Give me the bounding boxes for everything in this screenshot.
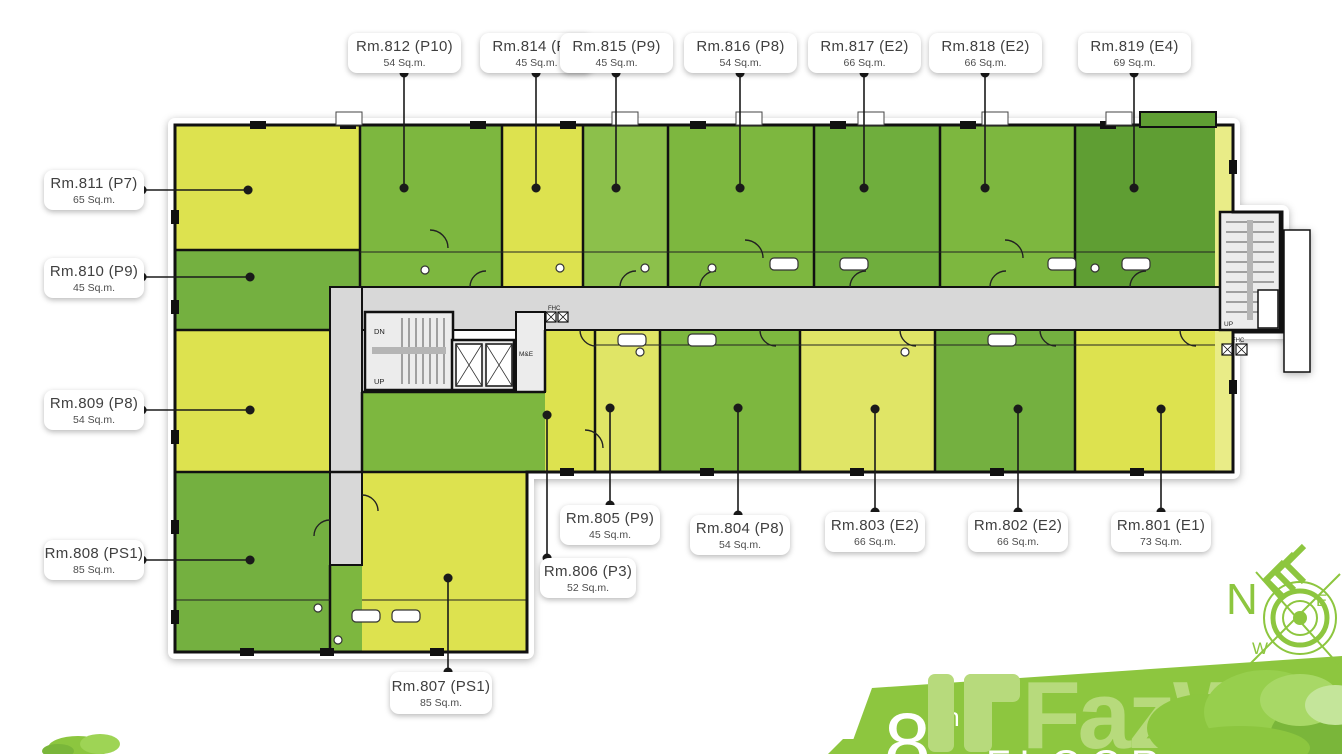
room-name: Rm.815 (P9) xyxy=(572,38,660,55)
room-name: Rm.818 (E2) xyxy=(941,38,1029,55)
room-area: 66 Sq.m. xyxy=(843,57,885,69)
callout-rm-818: Rm.818 (E2) 66 Sq.m. xyxy=(929,33,1042,73)
corridor-main xyxy=(350,287,1256,330)
room-name: Rm.816 (P8) xyxy=(696,38,784,55)
stair-up-label: UP xyxy=(374,377,384,386)
room-802 xyxy=(935,330,1075,472)
service-annex xyxy=(1284,230,1310,372)
callout-rm-808: Rm.808 (PS1) 85 Sq.m. xyxy=(44,540,144,580)
room-801 xyxy=(1075,330,1215,472)
compass-west: W xyxy=(1252,639,1268,658)
room-817 xyxy=(814,125,940,287)
room-area: 54 Sq.m. xyxy=(719,539,761,551)
right-lift xyxy=(1258,290,1278,328)
room-803 xyxy=(800,330,935,472)
room-area: 54 Sq.m. xyxy=(719,57,761,69)
callout-rm-819: Rm.819 (E4) 69 Sq.m. xyxy=(1078,33,1191,73)
room-name: Rm.808 (PS1) xyxy=(45,545,144,562)
room-name: Rm.804 (P8) xyxy=(696,520,784,537)
room-805 xyxy=(595,330,660,472)
room-806 xyxy=(545,330,595,472)
room-name: Rm.812 (P10) xyxy=(356,38,453,55)
room-807 xyxy=(362,472,527,652)
room-area: 66 Sq.m. xyxy=(854,536,896,548)
room-812 xyxy=(360,125,502,287)
room-area: 65 Sq.m. xyxy=(73,194,115,206)
callout-rm-807: Rm.807 (PS1) 85 Sq.m. xyxy=(390,672,492,714)
room-814 xyxy=(502,125,583,287)
floor-plan-canvas: DN UP M&E FHC UP DN FHC xyxy=(0,0,1342,754)
me-label: M&E xyxy=(519,351,534,358)
floor-plan-page: DN UP M&E FHC UP DN FHC xyxy=(0,0,1342,754)
room-area: 54 Sq.m. xyxy=(73,414,115,426)
floor-number: 8 xyxy=(884,696,931,754)
room-815 xyxy=(583,125,668,287)
room-area: 45 Sq.m. xyxy=(515,57,557,69)
room-name: Rm.805 (P9) xyxy=(566,510,654,527)
callout-rm-810: Rm.810 (P9) 45 Sq.m. xyxy=(44,258,144,298)
room-area: 45 Sq.m. xyxy=(595,57,637,69)
room-utility xyxy=(362,392,545,472)
callout-rm-803: Rm.803 (E2) 66 Sq.m. xyxy=(825,512,925,552)
callout-rm-806: Rm.806 (P3) 52 Sq.m. xyxy=(540,558,636,598)
compass-north: N xyxy=(1226,575,1258,624)
callout-rm-817: Rm.817 (E2) 66 Sq.m. xyxy=(808,33,921,73)
callout-rm-809: Rm.809 (P8) 54 Sq.m. xyxy=(44,390,144,430)
room-name: Rm.817 (E2) xyxy=(820,38,908,55)
room-name: Rm.811 (P7) xyxy=(50,175,137,192)
room-name: Rm.809 (P8) xyxy=(50,395,138,412)
compass-east: E xyxy=(1316,591,1327,610)
room-area: 69 Sq.m. xyxy=(1113,57,1155,69)
room-area: 45 Sq.m. xyxy=(589,529,631,541)
room-name: Rm.801 (E1) xyxy=(1117,517,1205,534)
stair-right-up-label: UP xyxy=(1224,321,1233,328)
room-811 xyxy=(175,125,360,250)
room-area: 66 Sq.m. xyxy=(997,536,1039,548)
room-area: 54 Sq.m. xyxy=(383,57,425,69)
callout-rm-816: Rm.816 (P8) 54 Sq.m. xyxy=(684,33,797,73)
corridor-wing xyxy=(330,287,362,565)
room-name: Rm.807 (PS1) xyxy=(392,678,491,695)
room-name: Rm.810 (P9) xyxy=(50,263,138,280)
room-name: Rm.819 (E4) xyxy=(1090,38,1178,55)
callout-rm-802: Rm.802 (E2) 66 Sq.m. xyxy=(968,512,1068,552)
footer-graphics: 8 th FLOOR PLAN FazWaz xyxy=(42,656,1342,754)
room-area: 85 Sq.m. xyxy=(420,697,462,709)
room-area: 45 Sq.m. xyxy=(73,282,115,294)
room-area: 73 Sq.m. xyxy=(1140,536,1182,548)
room-name: Rm.806 (P3) xyxy=(544,563,632,580)
compass-rose: N E W xyxy=(1226,546,1340,666)
room-area: 52 Sq.m. xyxy=(567,582,609,594)
callout-rm-812: Rm.812 (P10) 54 Sq.m. xyxy=(348,33,461,73)
callout-rm-805: Rm.805 (P9) 45 Sq.m. xyxy=(560,505,660,545)
room-area: 85 Sq.m. xyxy=(73,564,115,576)
room-name: Rm.802 (E2) xyxy=(974,517,1062,534)
fhc-label-main: FHC xyxy=(548,306,561,312)
bush-silhouette xyxy=(42,734,120,754)
stair-dn-label: DN xyxy=(374,327,385,336)
room-area: 66 Sq.m. xyxy=(964,57,1006,69)
room-name: Rm.803 (E2) xyxy=(831,517,919,534)
callout-rm-804: Rm.804 (P8) 54 Sq.m. xyxy=(690,515,790,555)
room-804 xyxy=(660,330,800,472)
room-809 xyxy=(175,330,330,472)
callout-rm-801: Rm.801 (E1) 73 Sq.m. xyxy=(1111,512,1211,552)
callout-rm-811: Rm.811 (P7) 65 Sq.m. xyxy=(44,170,144,210)
callout-rm-815: Rm.815 (P9) 45 Sq.m. xyxy=(560,33,673,73)
